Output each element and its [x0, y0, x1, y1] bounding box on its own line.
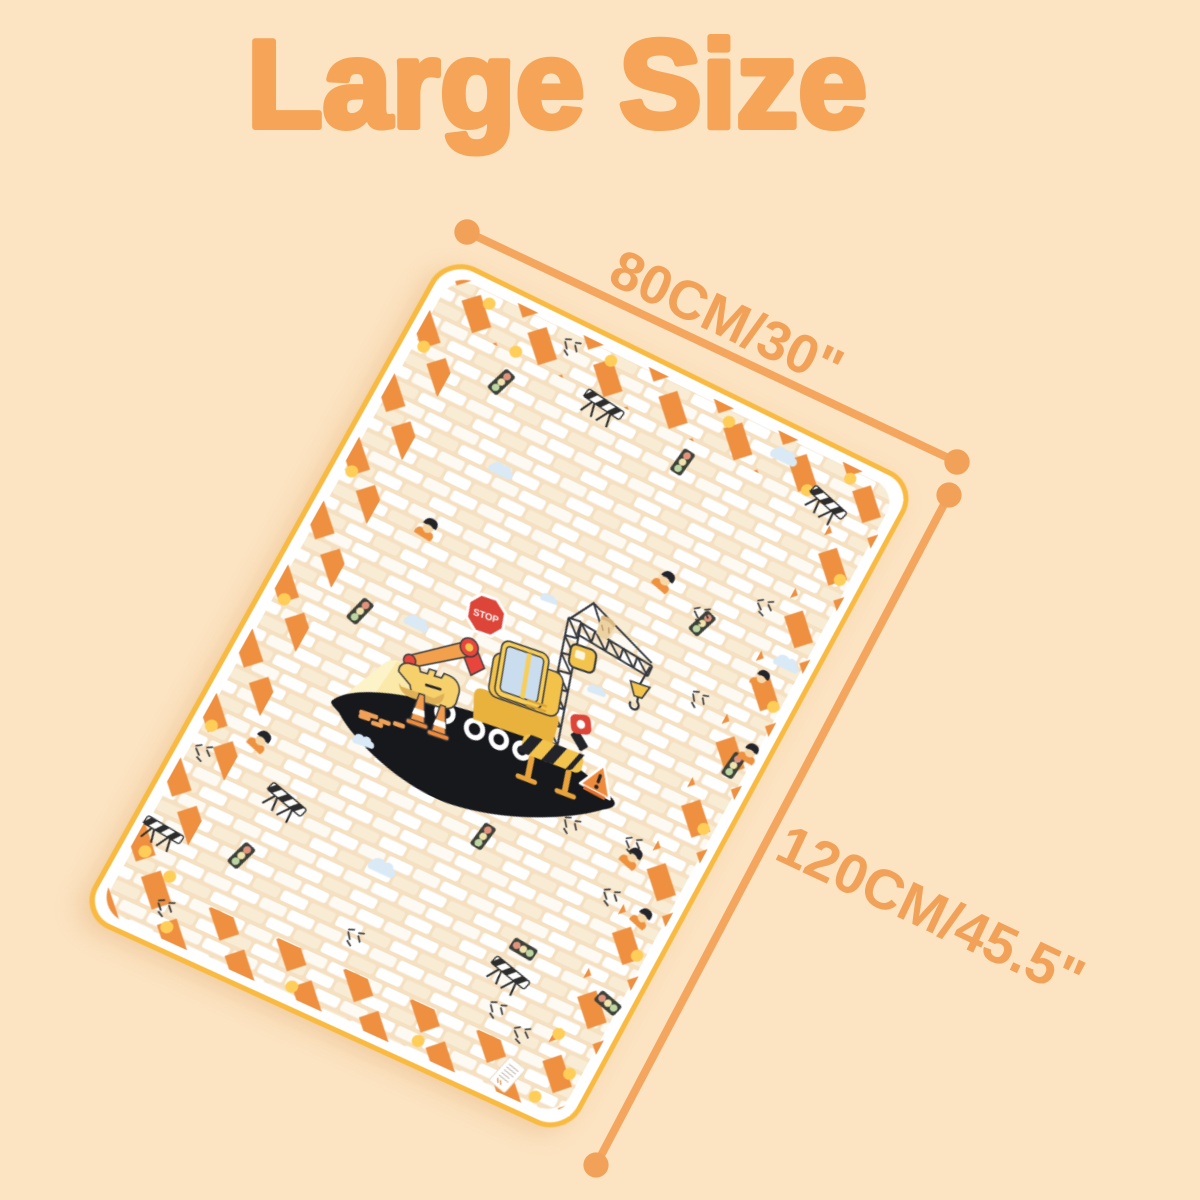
- svg-text:80CM/30": 80CM/30": [601, 237, 853, 399]
- svg-text:120CM/45.5": 120CM/45.5": [768, 812, 1095, 1010]
- svg-text:Large Size: Large Size: [247, 16, 867, 154]
